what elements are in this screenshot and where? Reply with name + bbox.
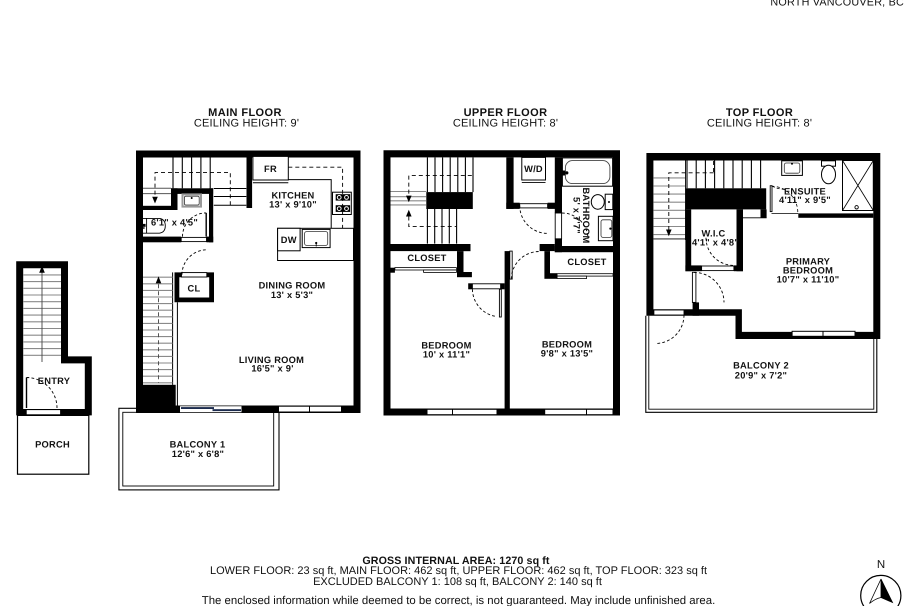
svg-text:W/D: W/D [524,164,543,174]
svg-text:20'9" x 7'2": 20'9" x 7'2" [735,370,787,380]
svg-text:13' x 5'3": 13' x 5'3" [271,290,313,300]
svg-text:CLOSET: CLOSET [407,253,446,263]
svg-text:NORTH VANCOUVER, BC: NORTH VANCOUVER, BC [770,0,904,9]
svg-text:CEILING HEIGHT: 8': CEILING HEIGHT: 8' [453,117,558,129]
svg-text:12'6" x 6'8": 12'6" x 6'8" [172,449,224,459]
svg-text:9'8" x 13'5": 9'8" x 13'5" [541,349,593,359]
svg-text:4'11" x 9'5": 4'11" x 9'5" [779,195,831,205]
svg-text:The enclosed information while: The enclosed information while deemed to… [202,595,716,606]
svg-text:CLOSET: CLOSET [567,257,606,267]
svg-text:DW: DW [281,235,297,245]
svg-text:N: N [877,559,885,571]
svg-text:PORCH: PORCH [35,440,70,450]
svg-text:10' x 11'1": 10' x 11'1" [423,349,470,359]
svg-text:4'1" x 4'8": 4'1" x 4'8" [692,237,739,247]
svg-text:FR: FR [264,164,277,174]
svg-text:16'5" x 9': 16'5" x 9' [251,364,293,374]
svg-text:13' x 9'10": 13' x 9'10" [269,199,317,209]
svg-text:CEILING HEIGHT: 8': CEILING HEIGHT: 8' [707,117,812,129]
svg-text:10'7" x 11'10": 10'7" x 11'10" [777,275,840,285]
svg-text:CEILING HEIGHT: 9': CEILING HEIGHT: 9' [194,117,299,129]
svg-text:ENTRY: ENTRY [38,376,71,386]
svg-text:6'1" x 4'5": 6'1" x 4'5" [151,218,198,228]
svg-text:EXCLUDED BALCONY 1: 108 sq ft,: EXCLUDED BALCONY 1: 108 sq ft, BALCONY 2… [313,576,602,588]
svg-text:CL: CL [188,283,201,293]
svg-text:BALCONY 2: BALCONY 2 [733,361,789,371]
